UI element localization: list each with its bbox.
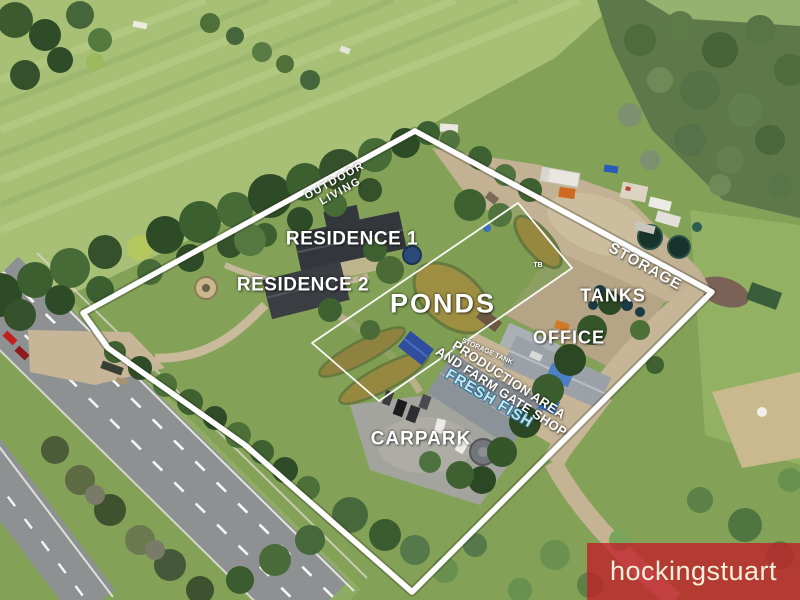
label-pond-marker: TB	[533, 262, 542, 270]
right-paddock	[690, 210, 800, 468]
agency-logo-text: hockingstuart	[610, 556, 777, 587]
label-tanks: TANKS	[580, 286, 646, 305]
agency-watermark: hockingstuart	[587, 543, 800, 600]
label-carpark: CARPARK	[371, 430, 472, 451]
aerial-property-photo: OUTDOOR LIVING RESIDENCE 1 RESIDENCE 2 P…	[0, 0, 800, 600]
label-ponds: PONDS	[390, 289, 496, 318]
label-office: OFFICE	[533, 328, 605, 347]
label-residence-2: RESIDENCE 2	[237, 276, 369, 297]
label-residence-1: RESIDENCE 1	[286, 230, 418, 251]
